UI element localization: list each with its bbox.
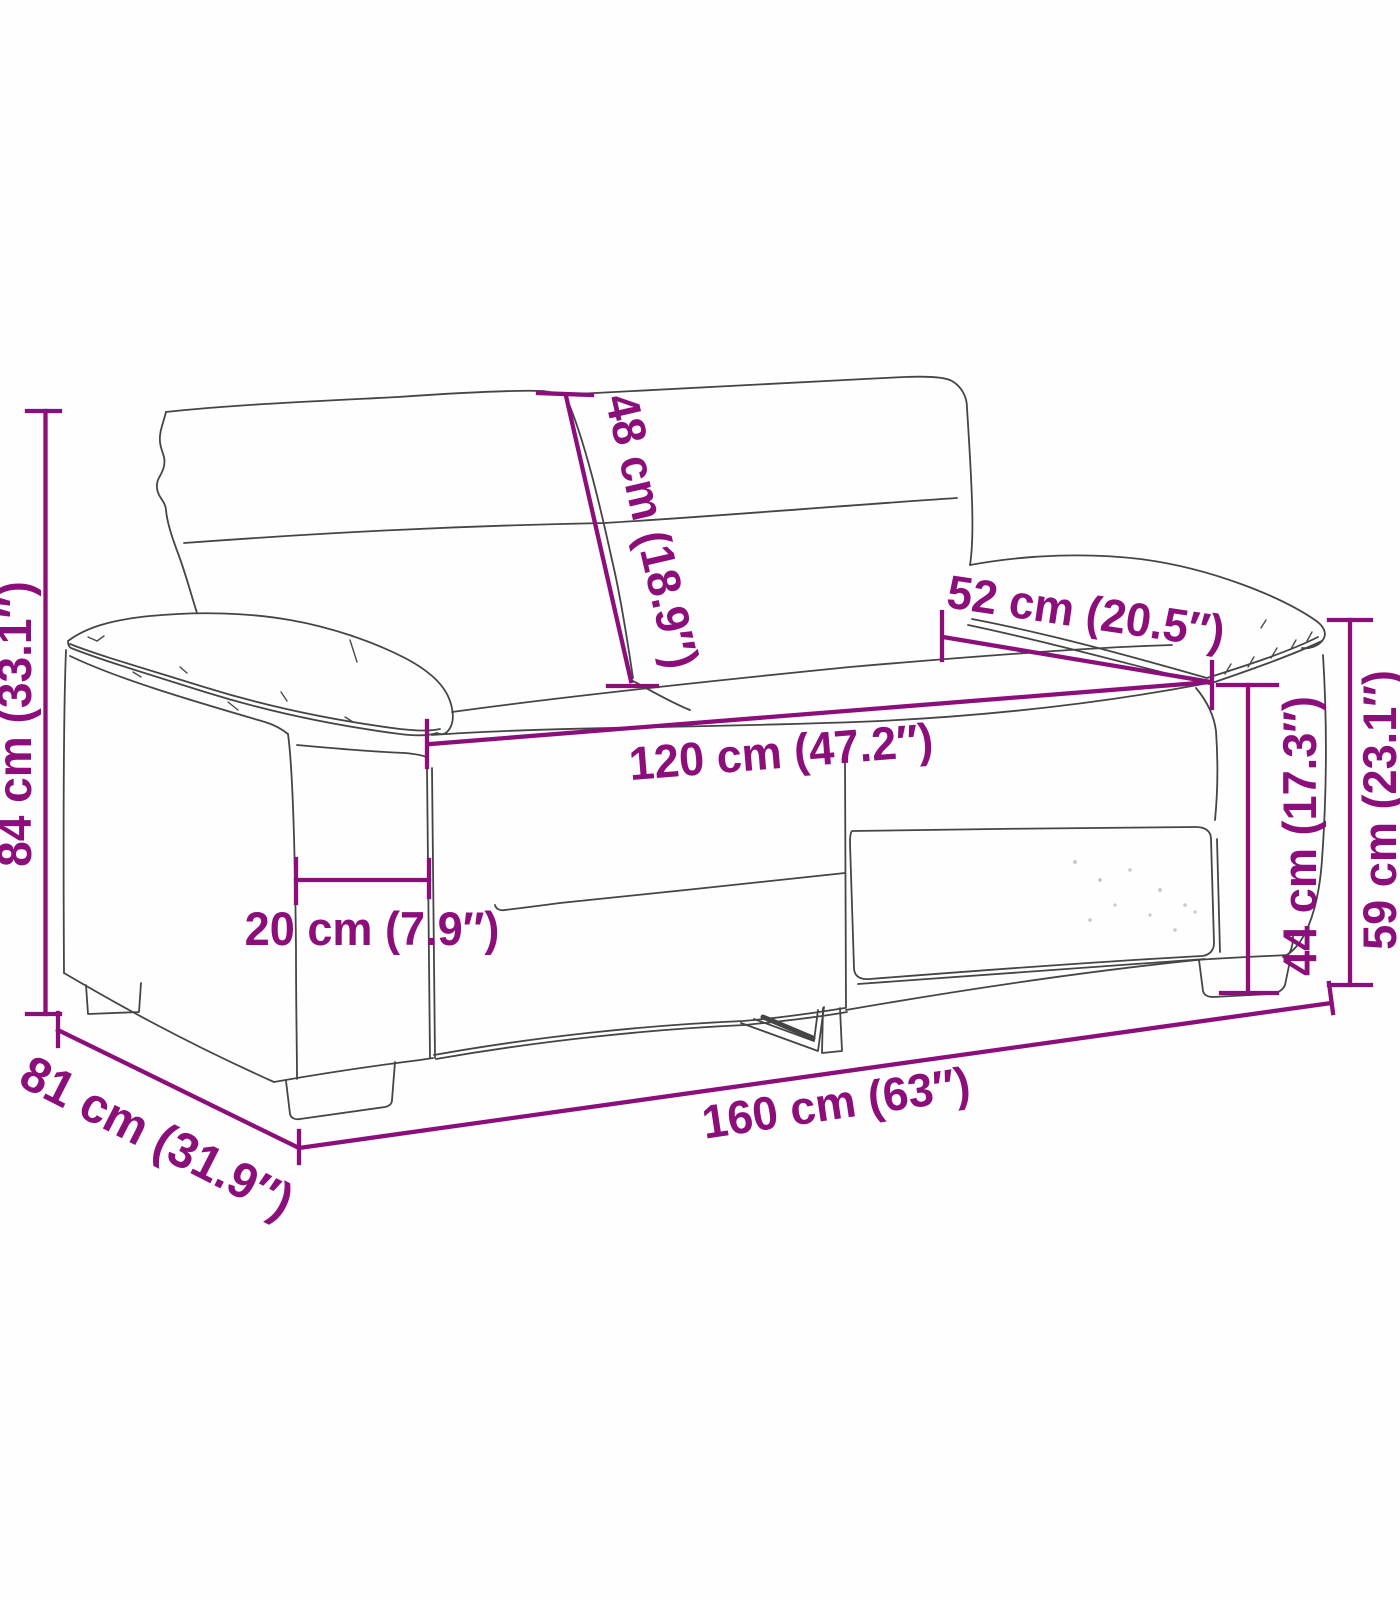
svg-text:20 cm (7.9″): 20 cm (7.9″): [245, 902, 500, 955]
svg-text:84 cm (33.1″): 84 cm (33.1″): [0, 581, 41, 867]
svg-text:44 cm (17.3″): 44 cm (17.3″): [1273, 696, 1326, 976]
svg-text:59 cm (23.1″): 59 cm (23.1″): [1353, 670, 1400, 950]
